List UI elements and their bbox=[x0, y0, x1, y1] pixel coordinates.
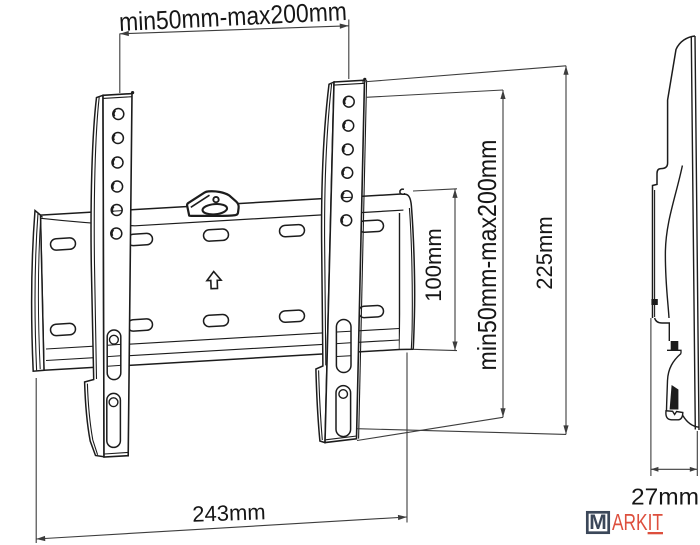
svg-text:min50mm-max200mm: min50mm-max200mm bbox=[118, 0, 347, 37]
svg-text:100mm: 100mm bbox=[421, 228, 446, 301]
svg-text:27mm: 27mm bbox=[631, 484, 699, 510]
svg-text:225mm: 225mm bbox=[532, 216, 557, 289]
svg-text:243mm: 243mm bbox=[192, 499, 266, 527]
svg-text:M: M bbox=[589, 511, 607, 534]
svg-text:min50mm-max200mm: min50mm-max200mm bbox=[472, 140, 502, 371]
svg-text:ARKIT: ARKIT bbox=[612, 509, 663, 535]
